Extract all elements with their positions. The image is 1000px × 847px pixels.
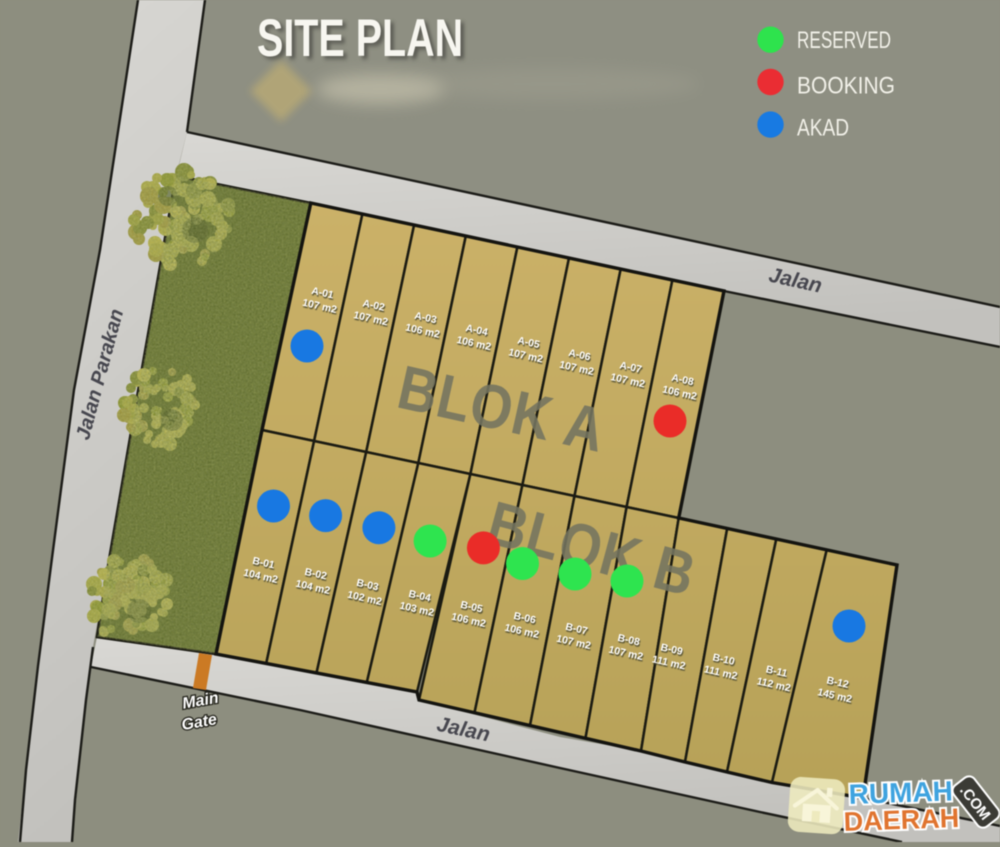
svg-text:SITE PLAN: SITE PLAN [257,8,463,67]
svg-text:RESERVED: RESERVED [797,27,891,53]
svg-text:BOOKING: BOOKING [797,72,895,98]
svg-text:DAERAH: DAERAH [843,803,959,837]
svg-text:AKAD: AKAD [797,115,849,141]
